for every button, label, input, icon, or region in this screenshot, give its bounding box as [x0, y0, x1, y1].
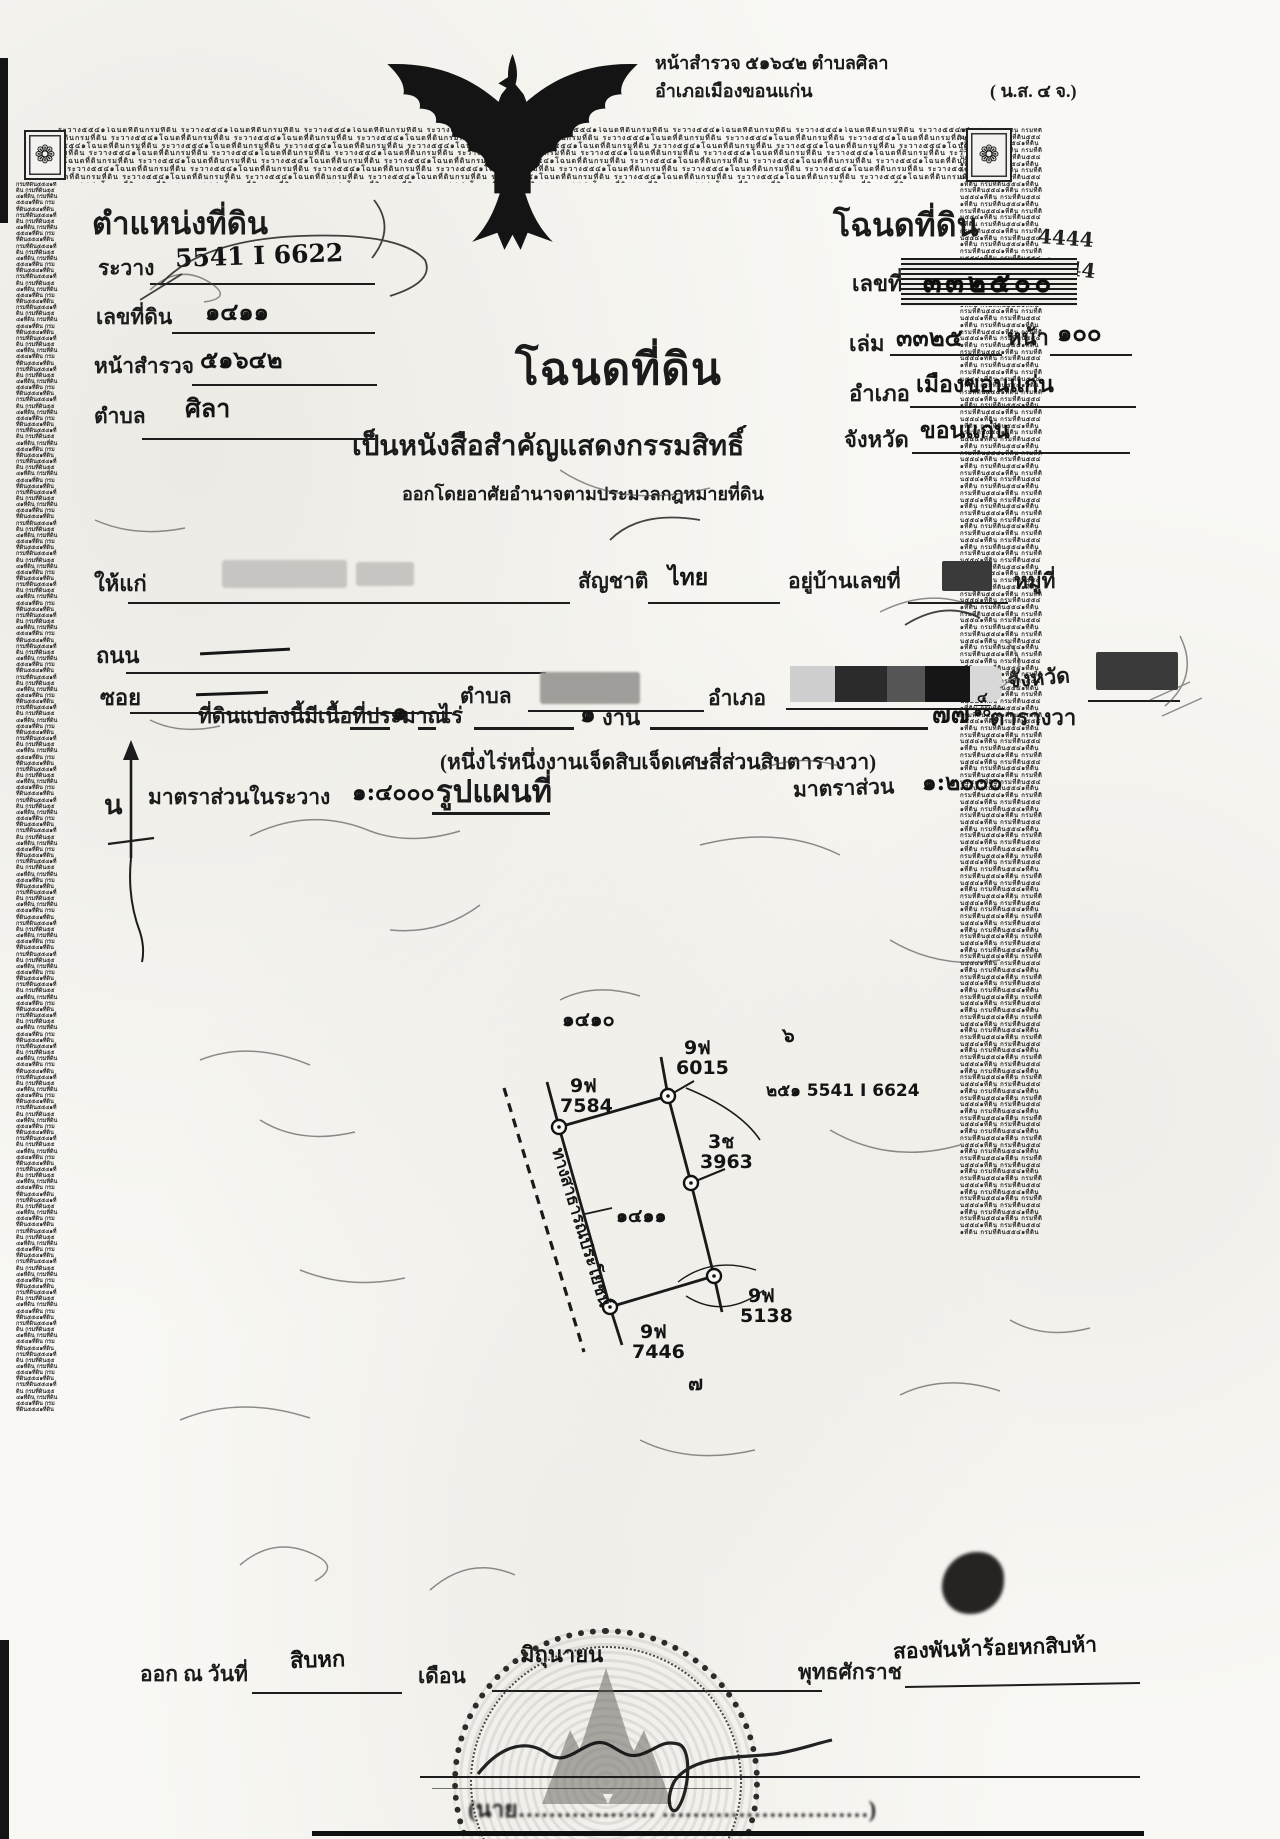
field-underline: [192, 384, 377, 386]
rai-value: ๑: [392, 692, 408, 732]
edge-bottom-code: 9ฟ: [640, 1321, 667, 1343]
redact-segment: [835, 666, 887, 702]
survey-header-line: หน้าสำรวจ ๕๑๖๔๒ ตำบลศิลา: [655, 48, 888, 77]
blank-dash: [200, 648, 290, 656]
address-changwat-redacted: [1096, 652, 1178, 690]
sheet-label: ระวาง: [98, 252, 154, 285]
tambon-value: ศิลา: [185, 389, 230, 429]
border-rosette-icon: ❁: [24, 130, 66, 180]
field-underline: [150, 283, 375, 285]
field-underline: [648, 602, 780, 604]
address-tambon-label: ตำบล: [460, 680, 512, 713]
field-underline: [890, 354, 1002, 356]
form-code: ( น.ส. ๔ จ.): [990, 76, 1076, 105]
blank-dash: [474, 727, 574, 730]
edge-left-code: 9ฟ: [570, 1075, 597, 1097]
deed-main-title: โฉนดที่ดิน: [515, 334, 722, 404]
microprint-strip-left: กรมที่ดิน๕๕๔๑ที่ดิน กรมที่ดิน๕๕๔๑ที่ดิน …: [16, 182, 58, 1580]
wa-label: ตารางวา: [990, 700, 1076, 735]
amphoe-value: เมืองขอนแก่น: [916, 367, 1054, 403]
issue-year-value: สองพันห้าร้อยหกสิบห้า: [892, 1628, 1097, 1668]
grantee-name-redacted: [356, 562, 414, 586]
map-scale-label: มาตราส่วน: [792, 770, 894, 807]
field-underline: [910, 406, 1136, 408]
mark-below: ๗: [688, 1371, 703, 1395]
blank-dash: [350, 727, 390, 730]
deed-number-redacted: ๓๓๒๕๐๐: [901, 258, 1077, 306]
amphoe-label: อำเภอ: [849, 376, 910, 411]
field-underline: [908, 602, 1008, 604]
deed-number-value: ๓๓๒๕๐๐: [923, 261, 1055, 304]
survey-page-label: หน้าสำรวจ: [94, 350, 194, 383]
address-changwat-label: จังหวัด: [1007, 659, 1071, 697]
field-underline: [172, 332, 375, 334]
page-value: ๑๐๐: [1057, 313, 1102, 352]
changwat-label: จังหวัด: [844, 422, 909, 457]
blank-dash: [196, 691, 268, 697]
parcel-number: ๑๔๑๑: [616, 1205, 667, 1227]
field-underline: [912, 452, 1130, 454]
deed-block-title: โฉนดที่ดิน: [833, 200, 978, 251]
nationality-label: สัญชาติ: [578, 565, 648, 598]
grantee-name-redacted: [222, 560, 347, 588]
changwat-value: ขอนแก่น: [920, 413, 1010, 449]
address-amphoe-label: อำเภอ: [708, 682, 766, 715]
issue-era-label: พุทธศักราช: [798, 1656, 902, 1689]
public-road-label: ทางสาธารณประโยชน์: [547, 1145, 615, 1309]
issue-prefix: ออก ณ วันที่: [140, 1658, 248, 1691]
tambon-label: ตำบล: [94, 400, 146, 433]
sheet-value: 5541 I 6622: [175, 238, 344, 273]
mark-right: ๖: [781, 1023, 795, 1047]
blank-dash: [650, 727, 928, 730]
land-deed-scan: หน้าสำรวจ ๕๑๖๔๒ ตำบลศิลา อำเภอเมืองขอนแก…: [0, 0, 1280, 1839]
border-rosette-icon: ❁: [966, 128, 1012, 182]
field-underline: [142, 438, 375, 440]
given-to-label: ให้แก่: [94, 566, 147, 601]
redact-segment: [790, 666, 835, 702]
sheet-scale-label: มาตราส่วนในระวาง: [148, 781, 330, 814]
wa-fraction: ๔๑๐: [974, 692, 991, 720]
soi-label: ซอย: [100, 680, 141, 715]
map-scale-value: ๑:๒๐๐๐: [922, 765, 1002, 801]
field-underline: [1050, 354, 1132, 356]
microprint-strip-right: กรมที่ดิน๕๕๔๑ที่ดิน กรมที่ดิน๕๕๔๑ที่ดิน …: [960, 128, 1044, 1688]
volume-label: เล่ม: [849, 326, 885, 361]
survey-page-value: ๕๑๖๔๒: [200, 340, 283, 379]
garuda-emblem-icon: [380, 50, 645, 257]
issued-under-line: ออกโดยอาศัยอำนาจตามประมวลกฎหมายที่ดิน: [402, 479, 764, 508]
edge-bottom-value: 7446: [632, 1341, 685, 1363]
svg-text:น: น: [104, 790, 123, 821]
edge-top-value: 6015: [676, 1057, 729, 1079]
deed-subtitle: เป็นหนังสือสำคัญแสดงกรรมสิทธิ์: [352, 424, 744, 468]
scan-edge-mark: [0, 1640, 9, 1839]
edge-right-code: 3ช: [708, 1131, 734, 1153]
edge-botright-value: 5138: [740, 1305, 793, 1327]
volume-value: ๓๓๒๕: [896, 318, 963, 357]
blank-dash: [418, 727, 436, 730]
neighbor-sheet-ref: ๒๕๑ 5541 I 6624: [766, 1081, 920, 1101]
title-underline: [432, 812, 550, 815]
district-header-line: อำเภอเมืองขอนแก่น: [655, 76, 813, 105]
parcel-sketch-map: ๑๔๑๐ 9ฟ 6015 9ฟ 7584 ๒๕๑ 5541 I 6624 3ช …: [440, 990, 920, 1410]
edge-right-value: 3963: [700, 1151, 753, 1173]
wa-value: ๗๗๔๑๐: [932, 692, 991, 734]
north-arrow-icon: น: [98, 736, 168, 966]
field-underline: [252, 1692, 402, 1694]
sheet-scale-value: ๑:๔๐๐๐: [352, 775, 435, 811]
ngan-value: ๑: [580, 694, 596, 734]
parcel-number-value: ๑๔๑๑: [205, 292, 269, 331]
rai-label: ไร่: [440, 698, 463, 733]
road-label: ถนน: [96, 638, 139, 673]
house-number-label: อยู่บ้านเลขที่: [788, 565, 901, 598]
moo-label: หมู่ที่: [1014, 565, 1056, 598]
adjacent-parcel-above: ๑๔๑๐: [562, 1007, 615, 1031]
parcel-number-label: เลขที่ดิน: [96, 301, 172, 334]
field-underline: [1088, 700, 1180, 702]
nationality-value: ไทย: [668, 560, 708, 596]
map-section-title: รูปแผนที่: [436, 766, 552, 816]
edge-left-value: 7584: [560, 1095, 613, 1117]
ngan-label: งาน: [602, 700, 640, 735]
page-label: หน้า: [1007, 320, 1049, 355]
field-underline: [126, 672, 546, 674]
deed-number-label: เลขที่: [852, 266, 903, 301]
bottom-rule: [312, 1831, 1144, 1836]
area-prefix: ที่ดินแปลงนี้มีเนื้อที่ประมาณ: [198, 700, 447, 733]
edge-top-code: 9ฟ: [684, 1037, 711, 1059]
margin-mark: 4444: [1037, 224, 1094, 252]
house-number-redacted: [942, 561, 992, 591]
signatory-name-line: (นาย……………… ………………………): [468, 1792, 812, 1828]
issue-day-value: สิบหก: [289, 1641, 345, 1678]
redact-segment: [887, 666, 925, 702]
scan-edge-mark: [0, 58, 8, 223]
position-block-title: ตำแหน่งที่ดิน: [92, 198, 268, 248]
edge-botright-code: 9ฟ: [748, 1285, 775, 1307]
field-underline: [128, 602, 570, 604]
